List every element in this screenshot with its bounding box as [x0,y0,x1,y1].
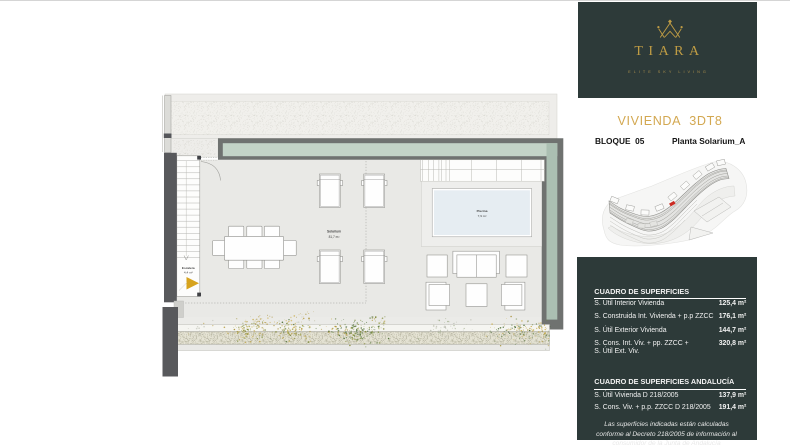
svg-text:7,9 m²: 7,9 m² [478,214,487,218]
svg-text:81,7 m²: 81,7 m² [329,235,340,239]
svg-text:4,4 m²: 4,4 m² [184,270,193,274]
svg-text:Piscina: Piscina [477,209,488,213]
svg-text:Solarium: Solarium [327,230,341,234]
